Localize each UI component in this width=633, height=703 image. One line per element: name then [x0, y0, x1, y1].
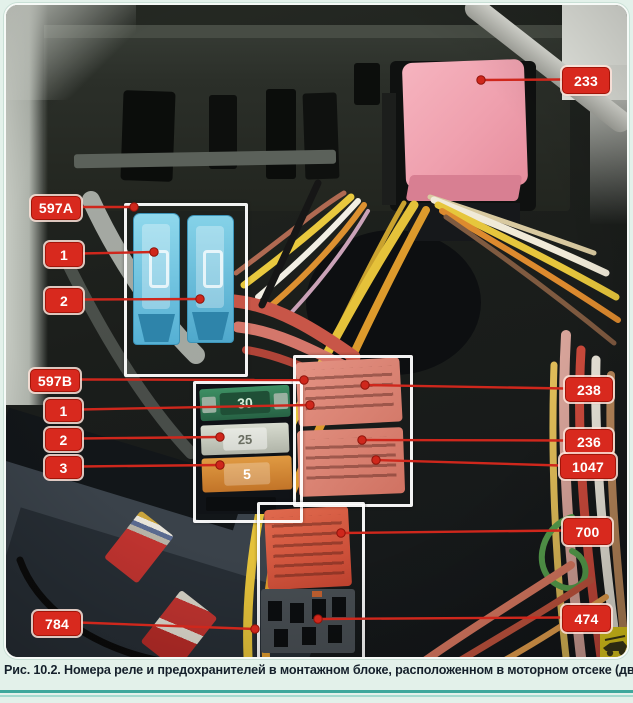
- callout-784: 784: [33, 611, 81, 636]
- callout-1: 1: [45, 242, 83, 267]
- caption-rule: [0, 690, 633, 693]
- callout-1: 1: [45, 399, 82, 422]
- callout-238: 238: [565, 377, 613, 402]
- callout-3: 3: [45, 456, 82, 479]
- caption-rule-light: [0, 695, 633, 697]
- callout-700: 700: [563, 518, 612, 545]
- callout-2: 2: [45, 428, 82, 451]
- callout-1047: 1047: [560, 454, 616, 479]
- figure-caption: Рис. 10.2. Номера реле и предохранителей…: [0, 663, 633, 677]
- callout-2: 2: [45, 288, 83, 313]
- leader-lines: [4, 3, 625, 655]
- callout-474: 474: [562, 605, 611, 632]
- callout-layer: 233597A12597B1232382361047700474784: [4, 3, 625, 655]
- callout-597b: 597B: [30, 369, 80, 392]
- callout-597a: 597A: [31, 196, 81, 220]
- callout-236: 236: [565, 429, 613, 454]
- callout-233: 233: [562, 67, 610, 94]
